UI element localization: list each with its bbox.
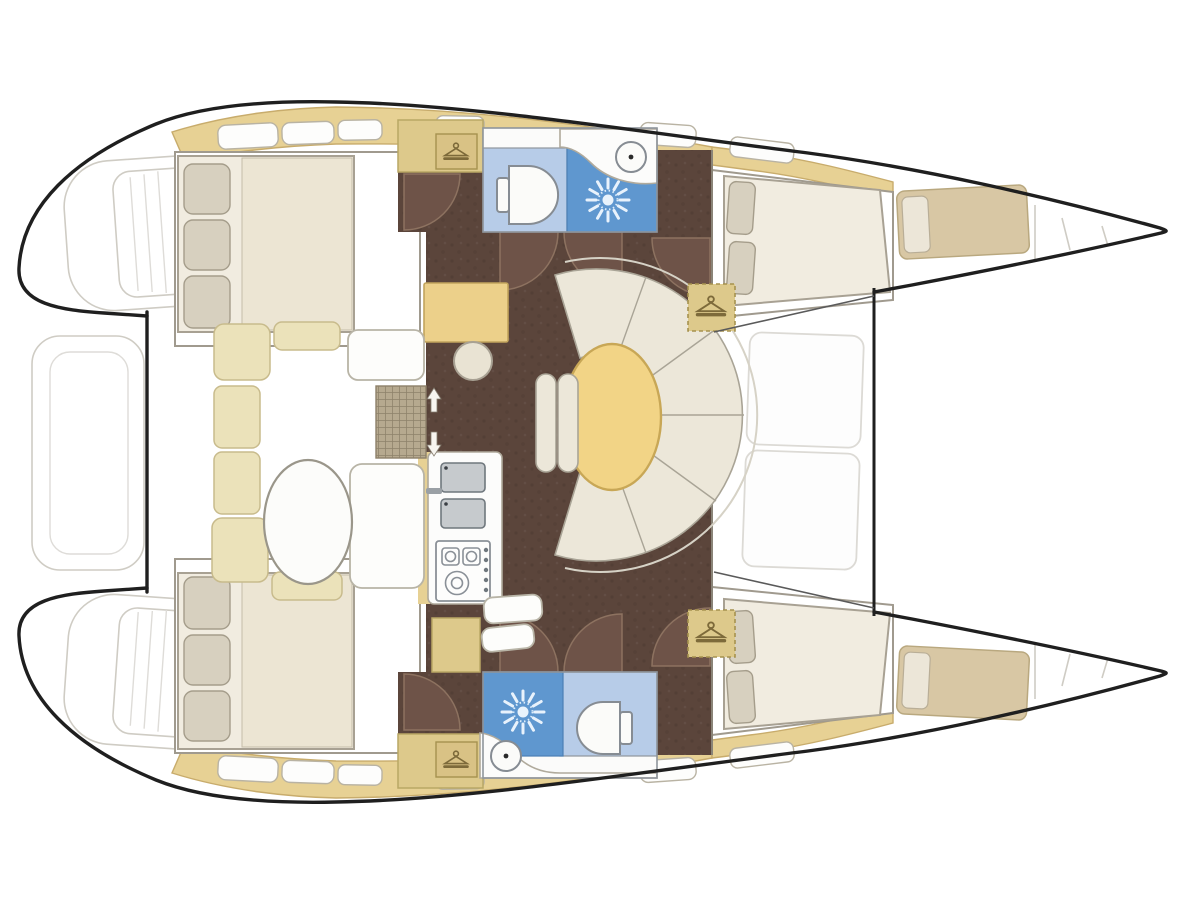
pillow bbox=[902, 196, 931, 253]
deck-hatch bbox=[338, 120, 382, 141]
stool bbox=[454, 342, 492, 380]
forepeak-berth-top bbox=[896, 185, 1035, 262]
transom-step-lines bbox=[130, 608, 166, 732]
companionway-step bbox=[483, 594, 543, 624]
floorplan-page bbox=[0, 0, 1200, 899]
head-top bbox=[483, 128, 657, 232]
deck-hatch bbox=[217, 122, 278, 149]
aft-platform bbox=[32, 336, 144, 570]
toilet-tank bbox=[620, 712, 632, 744]
wardrobe-box bbox=[436, 742, 477, 777]
hanging-locker bbox=[688, 284, 735, 331]
aft-platform-outline bbox=[32, 336, 144, 570]
toilet-tank bbox=[497, 178, 509, 212]
sink-drain bbox=[444, 502, 448, 506]
pillow bbox=[184, 276, 230, 328]
settee-cushion bbox=[214, 452, 260, 514]
step-cabinet bbox=[432, 618, 480, 672]
stove-knob bbox=[484, 588, 488, 592]
bench-seat bbox=[536, 374, 556, 472]
basin-drain bbox=[629, 155, 634, 160]
toilet bbox=[577, 702, 620, 754]
pillow bbox=[726, 181, 756, 235]
pillow bbox=[184, 577, 230, 629]
companionway-grating bbox=[376, 386, 426, 458]
transom-step-lines bbox=[130, 171, 166, 295]
bench-seat bbox=[558, 374, 578, 472]
pillow bbox=[184, 635, 230, 685]
bed-blanket bbox=[242, 575, 352, 747]
cockpit-bench bbox=[348, 330, 424, 380]
pillow bbox=[184, 220, 230, 270]
sink-drain bbox=[444, 466, 448, 470]
stove-knob bbox=[484, 578, 488, 582]
faucet bbox=[426, 488, 442, 494]
wardrobe-top bbox=[398, 120, 483, 172]
pillow bbox=[902, 652, 931, 709]
stove-knob bbox=[484, 558, 488, 562]
chart-desk bbox=[424, 283, 508, 342]
deck-hatch bbox=[282, 760, 335, 784]
toilet bbox=[509, 166, 558, 224]
bed-blanket bbox=[242, 158, 352, 330]
pillow bbox=[184, 164, 230, 214]
aft-cabin-top bbox=[175, 152, 420, 346]
hanging-locker bbox=[688, 610, 735, 657]
wardrobe-bottom bbox=[398, 734, 483, 788]
deck-hatch bbox=[217, 755, 278, 782]
settee-cushion bbox=[214, 324, 270, 380]
deck-hatch bbox=[282, 121, 335, 145]
companionway-step bbox=[481, 623, 535, 652]
pillow bbox=[726, 670, 756, 724]
cockpit-bench bbox=[350, 464, 424, 588]
basin-drain bbox=[504, 754, 509, 759]
settee-cushion bbox=[214, 386, 260, 448]
cockpit bbox=[212, 322, 426, 600]
galley bbox=[418, 452, 502, 604]
stove-knob bbox=[484, 568, 488, 572]
settee-cushion bbox=[212, 518, 268, 582]
aft-platform-inner bbox=[50, 352, 128, 554]
wardrobe-box bbox=[436, 134, 477, 169]
floorplan-svg bbox=[0, 0, 1200, 899]
settee-cushion bbox=[274, 322, 340, 350]
pillow bbox=[184, 691, 230, 741]
door-panel-lower bbox=[742, 450, 860, 570]
forward-cabin-bottom bbox=[712, 587, 893, 735]
forepeak-berth-bottom bbox=[896, 642, 1035, 720]
cockpit-table bbox=[264, 460, 352, 584]
forward-cabin-top bbox=[712, 170, 893, 318]
door-panel-upper bbox=[746, 332, 864, 448]
head-bottom bbox=[480, 672, 657, 778]
stove-knob bbox=[484, 548, 488, 552]
deck-hatch bbox=[338, 765, 382, 786]
